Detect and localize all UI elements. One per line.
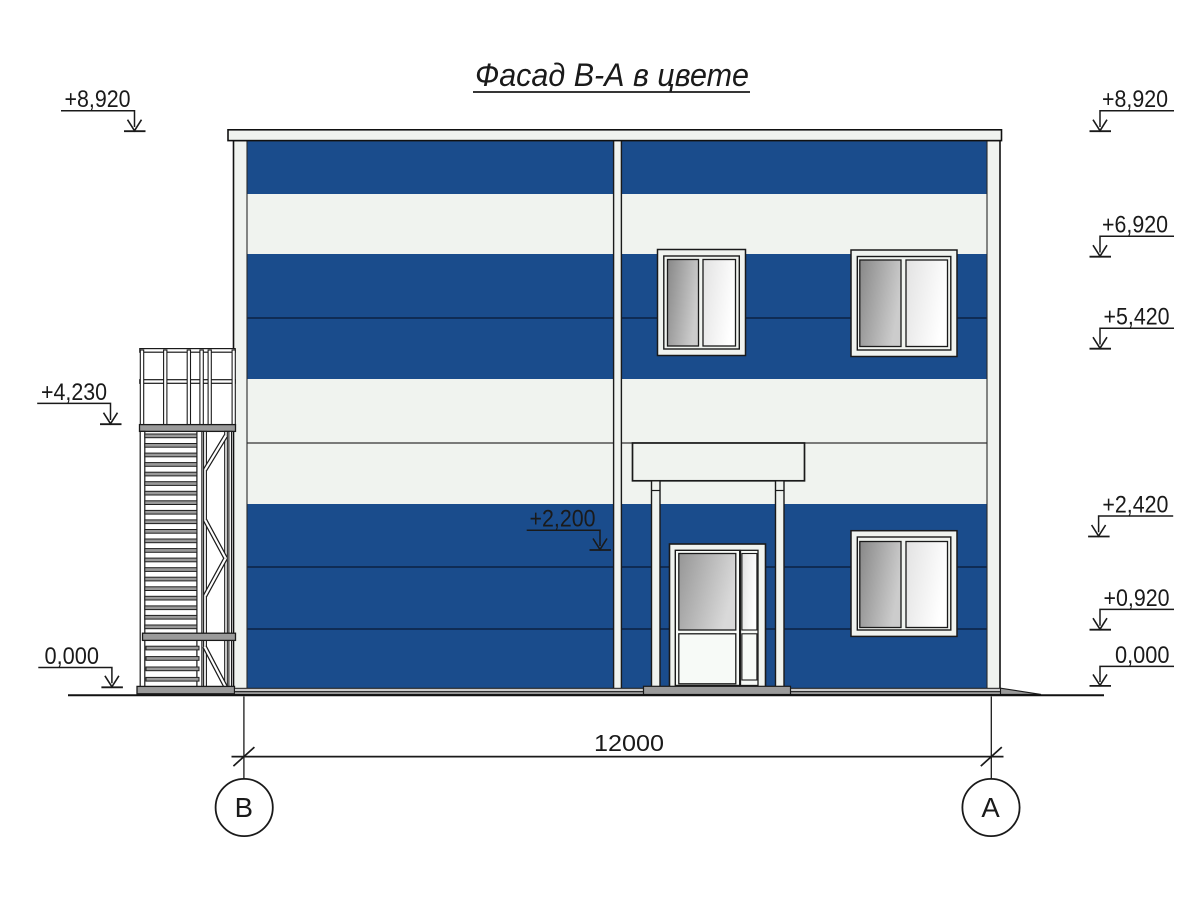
svg-text:+8,920: +8,920 <box>65 86 131 113</box>
svg-text:Фасад В-А в цвете: Фасад В-А в цвете <box>475 57 749 93</box>
svg-text:0,000: 0,000 <box>45 643 100 670</box>
svg-text:+0,920: +0,920 <box>1104 585 1170 612</box>
svg-text:+4,230: +4,230 <box>41 379 107 406</box>
svg-text:+5,420: +5,420 <box>1104 304 1170 331</box>
svg-text:+2,420: +2,420 <box>1102 491 1168 518</box>
svg-text:12000: 12000 <box>594 730 664 756</box>
svg-text:0,000: 0,000 <box>1115 642 1170 669</box>
svg-text:+2,200: +2,200 <box>530 506 596 533</box>
svg-text:А: А <box>981 792 1000 823</box>
svg-text:+8,920: +8,920 <box>1102 86 1168 113</box>
svg-text:В: В <box>235 792 253 823</box>
svg-text:+6,920: +6,920 <box>1102 212 1168 239</box>
